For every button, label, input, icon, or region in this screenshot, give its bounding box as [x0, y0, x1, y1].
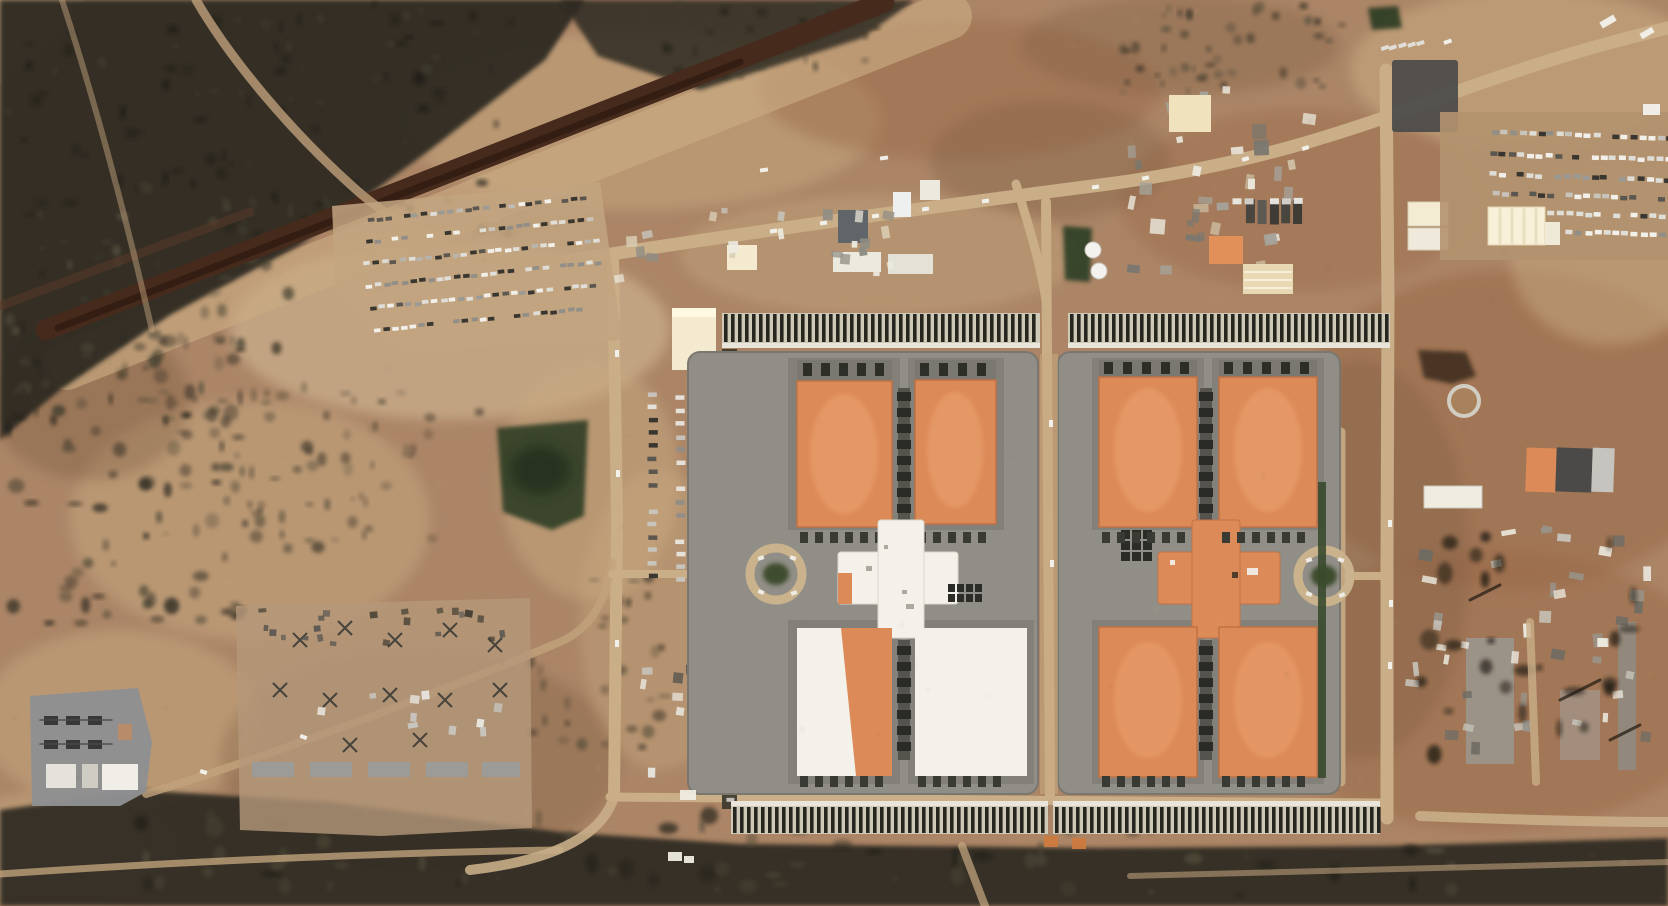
parked-cars [418, 323, 425, 327]
parked-cars [438, 210, 445, 214]
scrub-mid [304, 538, 315, 544]
rooftop-units [803, 363, 812, 376]
hedge-strip-east [1318, 482, 1326, 778]
light-sheds [684, 856, 694, 863]
generator-row-south-east-bar [1244, 807, 1248, 833]
dust-noise [972, 214, 975, 217]
laydown-shed-dark [838, 210, 868, 243]
dust-noise [895, 685, 899, 687]
parked-cars [1565, 230, 1572, 235]
parked-cars [1659, 215, 1666, 220]
parked-cars [586, 260, 593, 264]
scrub-mid [589, 578, 599, 582]
scrub-texture [24, 212, 37, 217]
scrub-mid [301, 382, 307, 393]
scrub-mid [279, 530, 284, 539]
dust-noise [1500, 250, 1505, 254]
substation-building [46, 764, 76, 788]
dust-noise [434, 868, 439, 872]
construction-shadows [1494, 554, 1505, 573]
scrub-mid [644, 591, 652, 600]
scrub-northeast [1313, 33, 1324, 40]
scrub-texture [322, 194, 327, 203]
scrub-left-edge [139, 478, 153, 491]
dust-noise [916, 782, 919, 787]
parked-cars [460, 253, 467, 257]
generator-row-north-west-bar [780, 314, 784, 342]
parked-cars [518, 202, 525, 206]
scrub-left-edge [226, 353, 240, 364]
entrance-green-west [763, 563, 789, 585]
dust-noise [134, 897, 138, 900]
generator-row-north-east-bar [1084, 314, 1088, 342]
scrub-texture [81, 353, 93, 359]
scrub-bottom-texture [1060, 881, 1077, 897]
parked-cars [488, 227, 495, 231]
scrub-mid [317, 452, 327, 466]
parked-cars [540, 243, 547, 247]
parked-cars [479, 249, 486, 253]
dust-noise [1214, 298, 1217, 302]
parked-cars [1526, 173, 1533, 178]
generator-row-south-west-bar [1006, 807, 1010, 833]
scrub-texture [433, 88, 445, 95]
scrub-texture [238, 225, 248, 235]
parked-cars [1630, 232, 1637, 237]
scrub-left-edge [192, 396, 198, 402]
parked-cars [368, 218, 375, 222]
scrub-mid [343, 462, 353, 476]
parked-cars [495, 248, 502, 252]
building-dark-roof [1555, 447, 1593, 492]
dust-noise [1123, 376, 1125, 380]
scrub-left-edge [205, 513, 219, 528]
scrub-left-edge [33, 359, 40, 366]
parked-cars [513, 247, 520, 251]
chiller-units [897, 678, 911, 687]
office-wing [1545, 222, 1560, 245]
scrub-texture [384, 74, 389, 81]
scrub-bottom-texture [1257, 860, 1276, 871]
laydown-yard-center [721, 208, 727, 214]
scrub-texture [81, 296, 88, 303]
light-sheds [680, 790, 696, 800]
generator-row-south-west-bar [824, 807, 828, 833]
parked-cars [374, 240, 381, 244]
rooftop-units [815, 776, 823, 787]
equipment-row [281, 635, 286, 641]
container-row [1258, 200, 1267, 224]
parked-cars [402, 281, 409, 285]
roof-details [1232, 572, 1238, 578]
rooftop-units [1252, 532, 1260, 543]
generator-row-south-west-bar [803, 807, 807, 833]
scrub-bottom-texture [327, 881, 334, 892]
scrub-bottom-texture [279, 878, 292, 893]
dust-noise [1660, 896, 1663, 901]
construction-shadows [1445, 640, 1463, 651]
vehicles-on-road [615, 350, 619, 357]
parked-cars [1640, 136, 1647, 141]
generator-row-north-east-bar [1336, 314, 1340, 342]
parked-cars [383, 327, 390, 331]
rooftop-units [1123, 362, 1132, 374]
chiller-units [1199, 662, 1213, 671]
scrub-mid [565, 720, 571, 726]
dust-noise [656, 541, 659, 546]
parked-cars [1499, 173, 1506, 178]
chiller-units [1199, 504, 1213, 513]
generator-row-south-east-bar [1328, 807, 1332, 833]
rooftop-units [1147, 776, 1155, 787]
generator-row-north-west-bar [962, 314, 966, 342]
generator-row-north-west-bar [724, 314, 728, 342]
parked-cars [1529, 131, 1536, 136]
generator-row-north-east-bar [1217, 314, 1221, 342]
parked-cars [587, 217, 594, 221]
parked-cars [453, 319, 460, 323]
parked-cars [1656, 156, 1663, 161]
site-trailers [369, 693, 376, 699]
rooftop-units [958, 363, 967, 376]
chiller-units [1199, 456, 1213, 465]
scrub-mid [247, 501, 253, 509]
construction-shadows [1420, 629, 1439, 649]
scrub-texture [6, 107, 13, 117]
parked-cars [1557, 211, 1564, 216]
scrub-texture [418, 6, 423, 15]
chiller-units [897, 694, 911, 703]
scrub-bottom-texture [1425, 847, 1445, 854]
parked-cars [1637, 157, 1644, 162]
laydown-long-trailer [888, 254, 933, 274]
generator-row-north-east [1068, 313, 1390, 343]
dust-noise [39, 248, 44, 250]
scrub-bottom-texture [952, 848, 958, 867]
equipment-row [263, 625, 268, 631]
scrub-texture [214, 356, 224, 370]
parked-cars [465, 208, 472, 212]
construction-shadows [1536, 664, 1543, 671]
rooftop-units [839, 363, 848, 376]
generator-row-south-east-bar [1237, 807, 1241, 833]
dust-noise [1072, 889, 1074, 892]
generator-row-north-east-bar [1364, 314, 1368, 342]
generator-row-south-west-bar [859, 807, 863, 833]
parked-cars [541, 310, 548, 314]
scrub-mid [223, 496, 230, 505]
parked-cars [502, 291, 509, 295]
parked-cars [1557, 131, 1564, 136]
scrub-left-edge [111, 561, 116, 567]
parked-cars [1594, 133, 1601, 138]
scrub-northeast [1233, 35, 1243, 45]
parked-cars [1611, 195, 1618, 200]
dust-noise [1285, 672, 1289, 677]
scrub-mid [306, 448, 313, 456]
scrub-texture [168, 26, 179, 34]
dust-noise [731, 460, 734, 463]
dust-noise [1086, 557, 1090, 561]
dust-noise [379, 340, 384, 343]
dust-noise [551, 350, 555, 354]
scrub-northeast [1272, 12, 1280, 21]
site-trailers [494, 703, 503, 713]
scrub-mid [249, 465, 254, 479]
scrub-bottom-texture [1025, 852, 1036, 869]
scrub-bottom-texture [1402, 845, 1419, 856]
generator-row-north-west-bar [983, 314, 987, 342]
rooftop-units [1267, 532, 1275, 543]
dust-noise [1595, 844, 1600, 848]
generator-row-north-west-bar [948, 314, 952, 342]
laydown-yard-center [855, 210, 864, 223]
scrub-texture [217, 169, 227, 179]
equipment-pad [426, 762, 468, 777]
scrub-left-edge [164, 597, 179, 614]
chiller-bank [1143, 552, 1152, 561]
road-east [1386, 70, 1388, 818]
parked-cars [1554, 175, 1561, 180]
scrub-texture [162, 79, 169, 89]
scrub-mid [221, 415, 231, 428]
scrub-northeast [1304, 16, 1313, 25]
parked-cars [541, 222, 548, 226]
site-trailers [448, 725, 456, 735]
dust-noise [1197, 719, 1200, 724]
generator-row-north-east-bar [1140, 314, 1144, 342]
dust-noise [1151, 388, 1154, 392]
dust-noise [1200, 121, 1202, 123]
parked-cars [1612, 135, 1619, 140]
rooftop-units [1147, 532, 1155, 543]
generator-row-north-east-bar [1315, 314, 1319, 342]
construction-structures [1511, 651, 1519, 664]
parked-cars [453, 230, 460, 234]
scrub-left-edge [232, 434, 245, 440]
construction-structures [1539, 611, 1551, 623]
generator-row-north-east-bar [1189, 314, 1193, 342]
laydown-yard-northeast [1198, 196, 1213, 204]
construction-shadows [1480, 532, 1491, 542]
dust-noise [913, 664, 917, 667]
generator-row-north-east-bar [1357, 314, 1361, 342]
parked-cars [1647, 156, 1654, 161]
scrub-texture [699, 25, 703, 30]
scrub-mid [250, 530, 263, 543]
scrub-mid [626, 725, 638, 732]
scrub-texture [92, 253, 104, 261]
generator-row-north-east-bar [1273, 314, 1277, 342]
parked-cars [1517, 152, 1524, 157]
parked-cars [476, 295, 483, 299]
scrub-mid [343, 429, 351, 439]
chiller-units [897, 662, 911, 671]
construction-structures [1445, 730, 1459, 740]
dust-noise [1416, 430, 1420, 433]
parked-trailers [676, 552, 685, 557]
dust-noise [835, 665, 837, 668]
scrub-mid [646, 697, 655, 702]
generator-row-north-west-bar [801, 314, 805, 342]
parked-cars [1510, 131, 1517, 136]
chiller-units [897, 726, 911, 735]
generator-row-edge [1068, 343, 1390, 348]
dust-noise [801, 621, 803, 626]
generator-row-south-west-bar [796, 807, 800, 833]
scrub-northeast [1252, 4, 1259, 16]
generator-row-south-west-bar [1034, 807, 1038, 833]
scrub-left-edge [154, 369, 168, 384]
generator-row-north-west-bar [745, 314, 749, 342]
parked-cars [445, 231, 452, 235]
rooftop-units [1177, 532, 1185, 543]
chiller-units [897, 504, 911, 513]
vehicles-on-road [1388, 520, 1392, 527]
generator-row-south-west-bar [999, 807, 1003, 833]
parked-cars [1585, 213, 1592, 218]
generator-row-south-east-bar [1209, 807, 1213, 833]
parked-cars [1527, 154, 1534, 159]
generator-row-north-east-bar [1133, 314, 1137, 342]
dust-noise [289, 98, 293, 101]
dust-noise [755, 622, 760, 627]
dust-noise [1431, 234, 1435, 237]
dust-noise [164, 707, 167, 710]
equipment-row [464, 609, 473, 617]
laydown-shed-white [920, 180, 940, 200]
scrub-texture [34, 408, 39, 417]
parked-cars [427, 322, 434, 326]
parked-cars [1574, 195, 1581, 200]
generator-row-south-west-bar [852, 807, 856, 833]
scrub-texture [274, 42, 280, 52]
scrub-texture [756, 8, 767, 17]
scrub-left-edge [193, 571, 209, 581]
dust-noise [1383, 574, 1387, 579]
generator-row-south-east-bar [1356, 807, 1360, 833]
rooftop-units [948, 776, 956, 787]
water-tank [1085, 242, 1101, 258]
chiller-units [1199, 646, 1213, 655]
scrub-texture [81, 153, 87, 157]
laydown-yard-center [646, 252, 659, 262]
parked-cars [1592, 155, 1599, 160]
dust-noise [586, 464, 590, 467]
scrub-texture [705, 18, 713, 27]
parked-cars [1627, 176, 1634, 181]
roof-details [1247, 568, 1258, 575]
scrub-left-edge [91, 426, 101, 436]
chiller-units [897, 742, 911, 751]
scrub-northeast [1131, 41, 1140, 53]
scrub-texture [507, 18, 515, 25]
parked-trailers [675, 421, 684, 426]
generator-row-north-west-bar [822, 314, 826, 342]
parked-cars [572, 284, 579, 288]
generator-row-north-east-bar [1245, 314, 1249, 342]
parked-cars [498, 269, 505, 273]
parked-trailers [676, 435, 685, 440]
dust-noise [1553, 591, 1556, 595]
parked-cars [401, 236, 408, 240]
rooftop-units [978, 532, 986, 543]
generator-row-north-west-bar [990, 314, 994, 342]
scrub-texture [390, 13, 400, 26]
laydown-yard-northeast [1231, 146, 1244, 154]
parked-cars [1647, 177, 1654, 182]
generator-row-north-east-bar [1308, 314, 1312, 342]
generator-row-south-east-bar [1293, 807, 1297, 833]
site-trailers [480, 727, 486, 737]
scrub-texture [184, 336, 189, 350]
dust-noise [1018, 58, 1023, 62]
parked-cars [1583, 193, 1590, 198]
generator-row-north-west-bar [934, 314, 938, 342]
generator-row-north-west-bar [969, 314, 973, 342]
parked-cars [1631, 135, 1638, 140]
parked-cars [1621, 231, 1628, 236]
parked-trailers [676, 409, 685, 414]
parked-cars [1502, 192, 1509, 197]
parked-cars [490, 271, 497, 275]
scrub-left-edge [150, 616, 164, 623]
parked-cars [1547, 211, 1554, 216]
construction-structures [1640, 731, 1651, 743]
generator-cluster [948, 594, 955, 602]
dust-noise [736, 591, 739, 593]
equipment-row [489, 637, 495, 642]
scrub-texture [239, 89, 243, 98]
rooftop-units [1267, 776, 1275, 787]
dust-noise [158, 53, 162, 55]
parked-cars [471, 274, 478, 278]
generator-row-north-west-bar [836, 314, 840, 342]
generator-row-south-west-bar [838, 807, 842, 833]
scrub-texture [35, 199, 48, 208]
scrub-texture [67, 260, 73, 270]
parked-cars [1640, 214, 1647, 219]
dust-noise [1209, 715, 1213, 719]
generator-row-north-west-bar [906, 314, 910, 342]
parked-cars [1576, 212, 1583, 217]
roof-vents [906, 604, 914, 609]
parked-cars [550, 310, 557, 314]
generator-row-north-east-bar [1294, 314, 1298, 342]
parked-cars [453, 254, 460, 258]
scrub-mid [427, 534, 438, 543]
roof-details [1170, 560, 1175, 565]
scrub-northeast [1124, 79, 1130, 85]
equipment-row [401, 608, 409, 614]
rooftop-units [1117, 532, 1125, 543]
scrub-mid [242, 520, 249, 528]
scrub-texture [661, 42, 669, 52]
scrub-mid [230, 481, 240, 493]
parked-cars [470, 250, 477, 254]
parked-cars [546, 287, 553, 291]
scrub-northeast [1319, 84, 1326, 89]
scrub-texture [147, 398, 159, 404]
generator-row-south-east-bar [1188, 807, 1192, 833]
scrub-texture [402, 11, 412, 21]
scrub-texture [311, 125, 319, 133]
dust-noise [1262, 474, 1265, 479]
laydown-yard-center [873, 269, 880, 277]
construction-structures [1592, 656, 1602, 663]
scrub-texture [260, 259, 272, 271]
equipment-row [323, 610, 331, 617]
